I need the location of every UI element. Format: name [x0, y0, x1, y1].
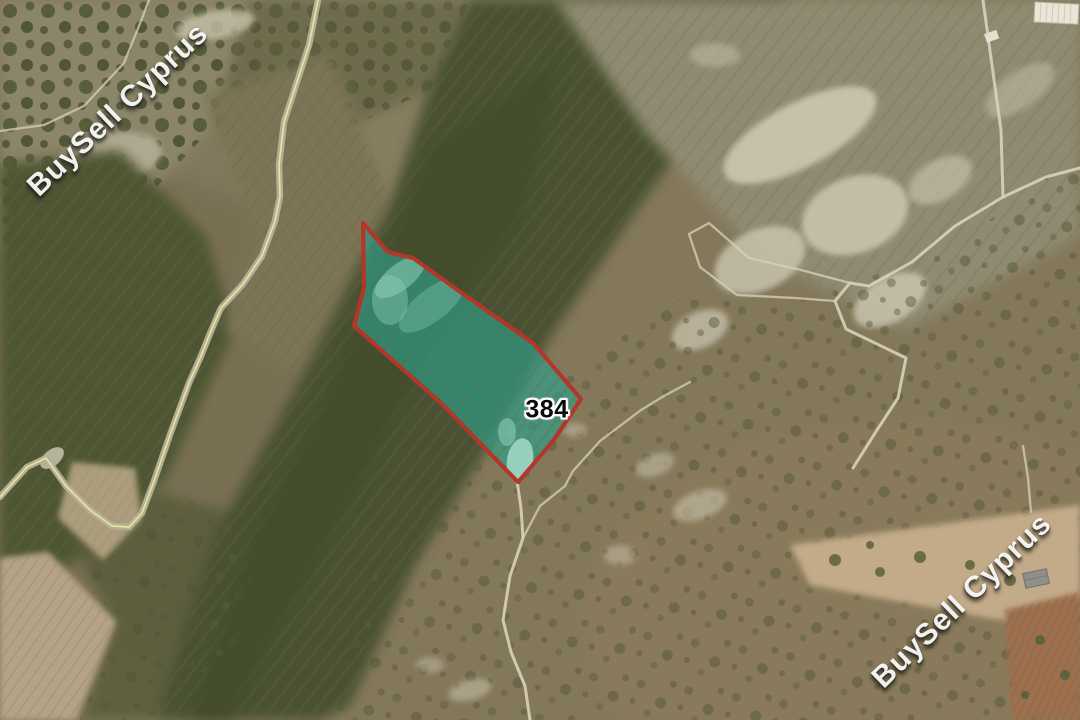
greenhouse-structure: [1034, 2, 1079, 24]
satellite-canvas: [0, 0, 1080, 720]
parcel-number-label: 384: [525, 396, 568, 425]
red-field: [1005, 592, 1080, 720]
satellite-map[interactable]: 384 BuySell Cyprus BuySell Cyprus: [0, 0, 1080, 720]
